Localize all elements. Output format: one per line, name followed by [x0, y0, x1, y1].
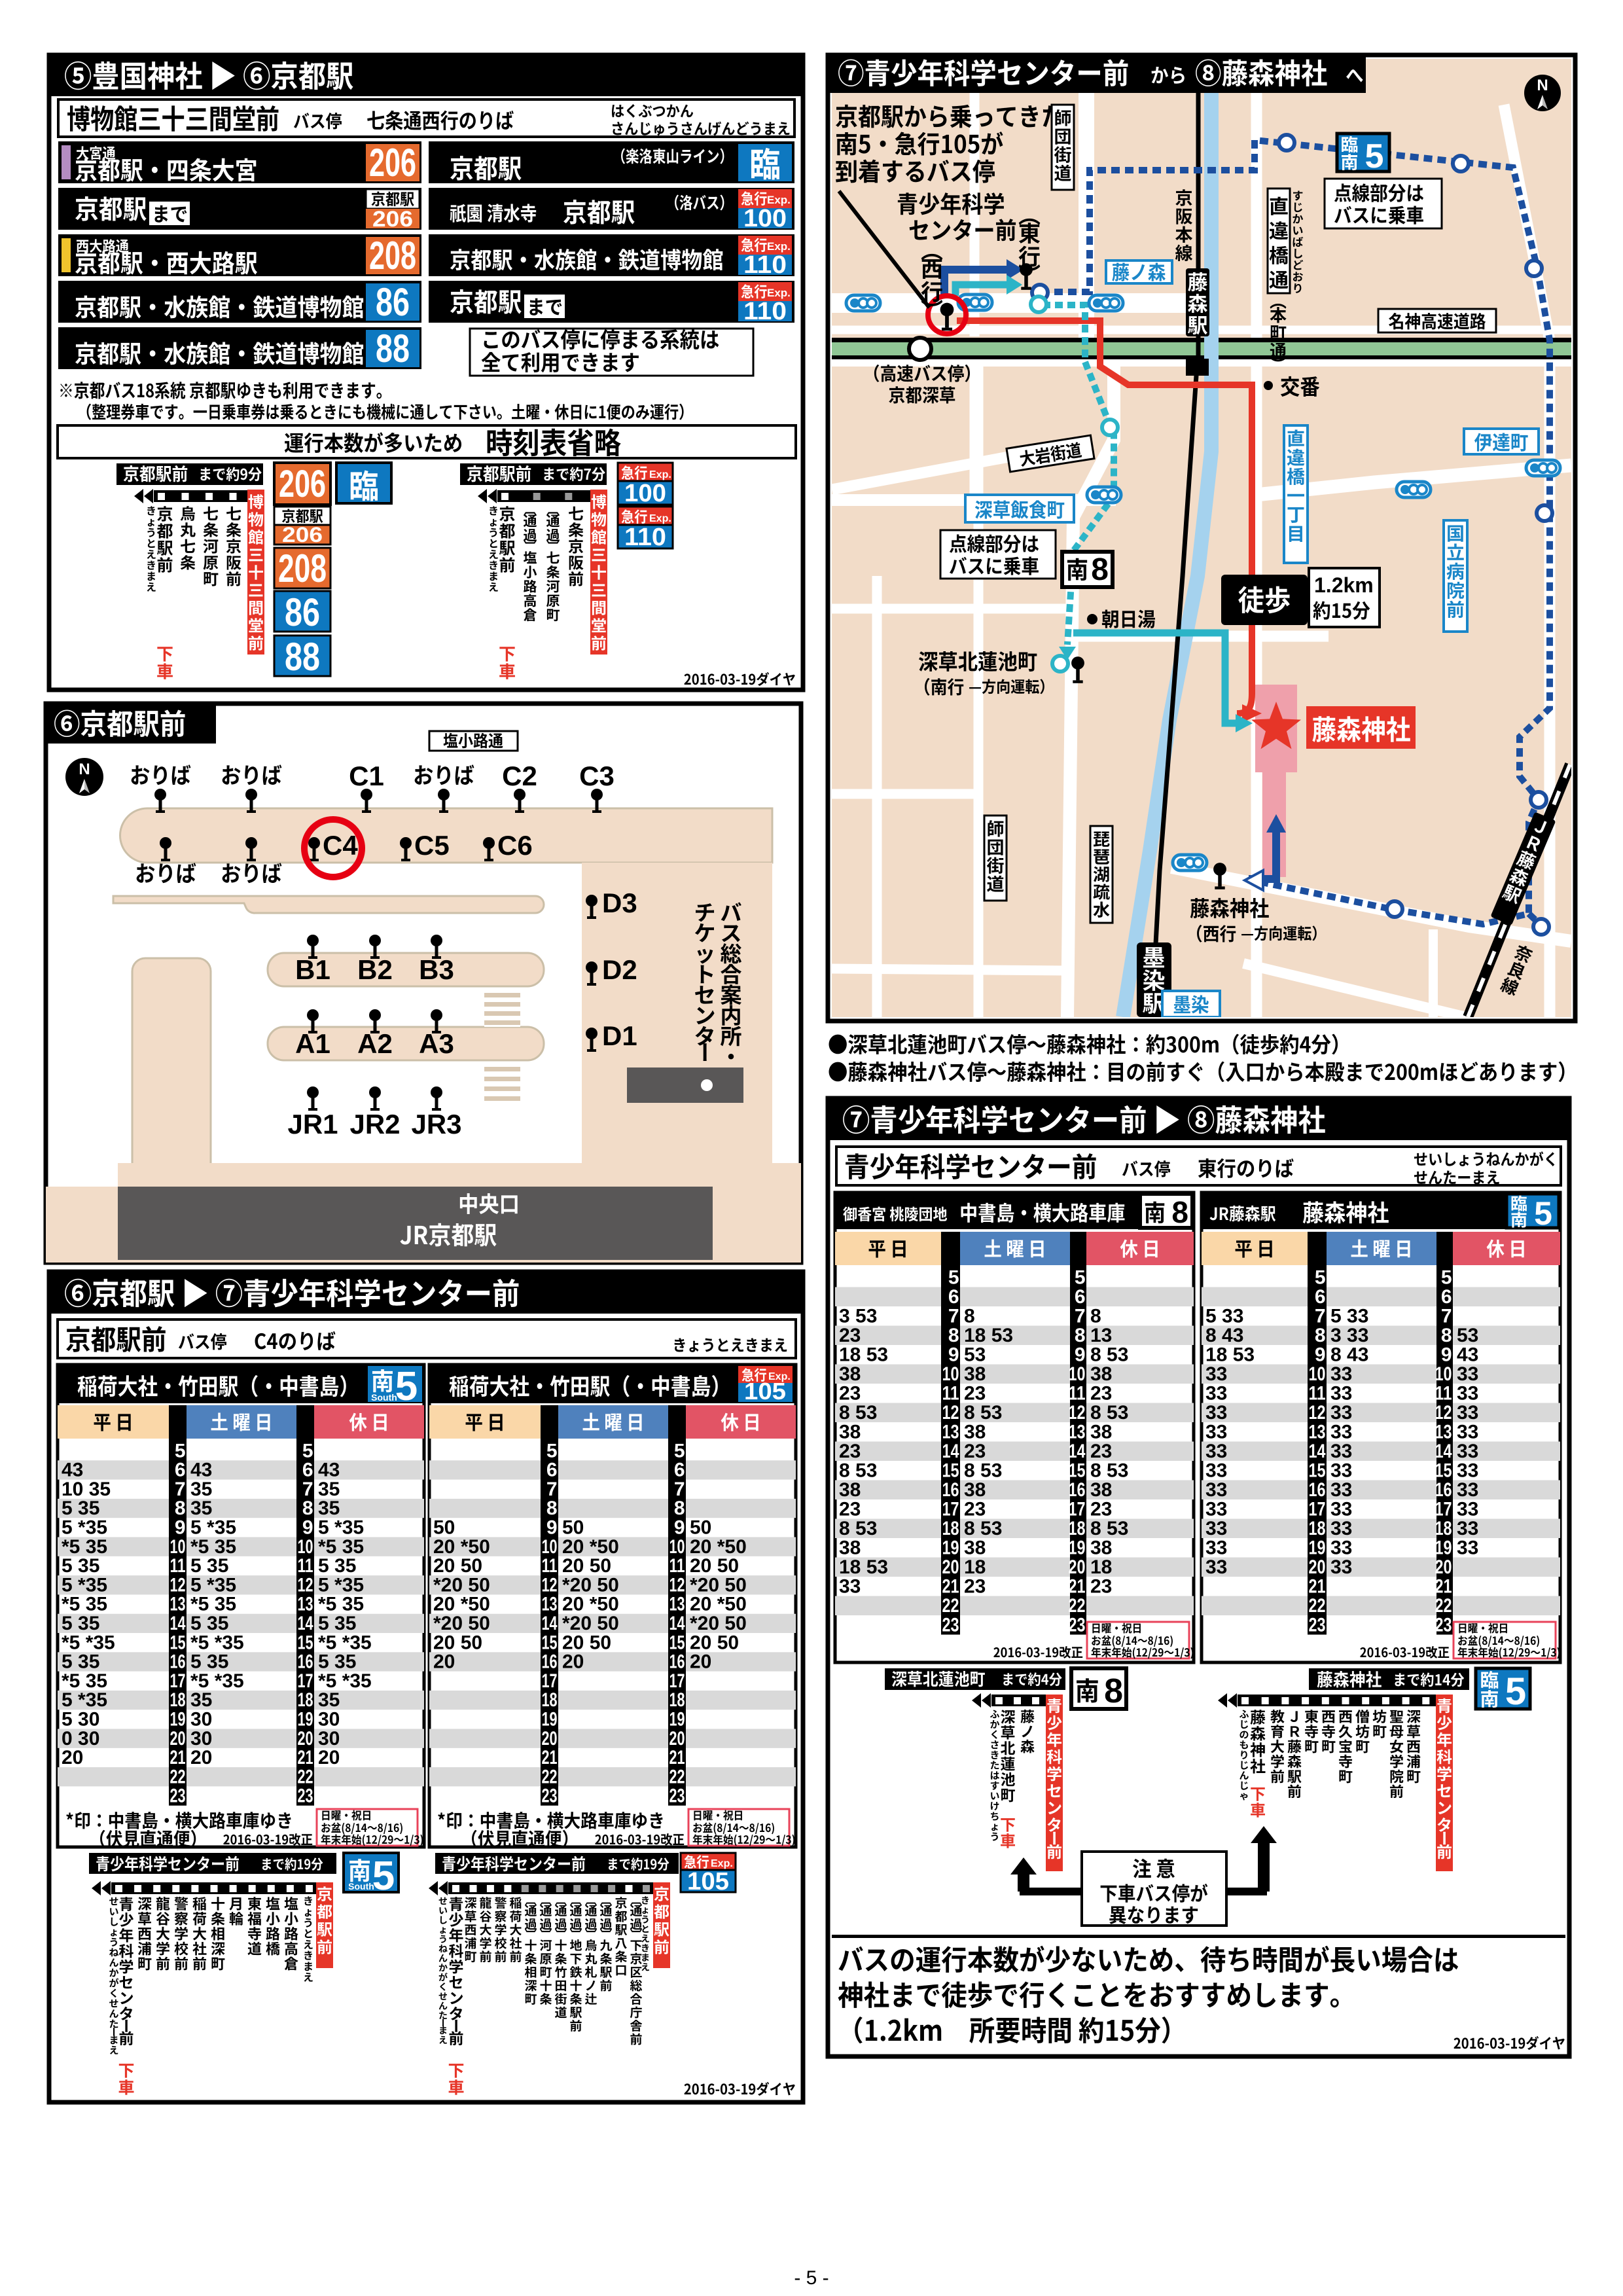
svg-text:206: 206	[369, 141, 416, 185]
svg-text:21: 21	[669, 1747, 685, 1768]
svg-text:JR3: JR3	[411, 1109, 461, 1139]
svg-text:33: 33	[1205, 1363, 1227, 1385]
svg-text:5 35: 5 35	[62, 1613, 99, 1634]
svg-text:18: 18	[1090, 1556, 1112, 1578]
svg-text:33: 33	[1457, 1518, 1478, 1539]
svg-text:35: 35	[318, 1689, 340, 1711]
svg-text:38: 38	[1090, 1479, 1112, 1501]
svg-text:10: 10	[298, 1536, 313, 1558]
svg-text:1.2km: 1.2km	[1314, 573, 1374, 597]
svg-text:8: 8	[964, 1306, 975, 1327]
svg-text:12: 12	[170, 1574, 186, 1596]
svg-text:11: 11	[298, 1555, 313, 1577]
svg-text:11: 11	[1309, 1383, 1326, 1405]
svg-text:33: 33	[1330, 1460, 1352, 1482]
svg-text:15: 15	[1069, 1460, 1086, 1482]
svg-text:43: 43	[1457, 1344, 1478, 1366]
svg-text:43: 43	[318, 1460, 340, 1481]
svg-text:100: 100	[624, 480, 666, 507]
svg-text:12: 12	[669, 1574, 685, 1596]
svg-text:12: 12	[1309, 1402, 1326, 1424]
svg-text:21: 21	[1069, 1576, 1086, 1598]
svg-text:10: 10	[170, 1536, 186, 1558]
svg-text:6: 6	[1441, 1286, 1452, 1308]
svg-text:7: 7	[546, 1479, 558, 1500]
svg-text:23: 23	[839, 1383, 861, 1405]
svg-text:23: 23	[964, 1441, 986, 1462]
svg-text:8: 8	[546, 1498, 558, 1519]
svg-text:11: 11	[669, 1555, 685, 1577]
svg-text:16: 16	[542, 1651, 558, 1673]
svg-text:22: 22	[298, 1766, 313, 1787]
svg-text:20 *50: 20 *50	[433, 1594, 490, 1615]
svg-text:C1: C1	[349, 761, 384, 791]
svg-text:33: 33	[1330, 1441, 1352, 1462]
svg-text:5 35: 5 35	[62, 1651, 99, 1673]
svg-text:N: N	[1537, 77, 1548, 94]
svg-text:15: 15	[669, 1632, 685, 1653]
svg-text:18: 18	[542, 1689, 558, 1711]
svg-text:30: 30	[318, 1709, 340, 1731]
svg-text:20: 20	[190, 1747, 212, 1768]
svg-text:14: 14	[669, 1613, 685, 1634]
svg-text:33: 33	[839, 1576, 861, 1598]
svg-text:South: South	[371, 1392, 397, 1403]
svg-text:20 50: 20 50	[562, 1632, 611, 1653]
svg-text:*5 *35: *5 *35	[190, 1670, 244, 1692]
svg-text:18 53: 18 53	[1205, 1344, 1255, 1366]
svg-text:23: 23	[542, 1785, 558, 1807]
svg-text:22: 22	[1435, 1595, 1452, 1617]
svg-text:23: 23	[964, 1576, 986, 1598]
svg-text:206: 206	[282, 523, 323, 547]
svg-text:20 50: 20 50	[562, 1555, 611, 1577]
svg-text:5 35: 5 35	[318, 1555, 356, 1577]
svg-text:33: 33	[1330, 1499, 1352, 1520]
svg-text:9: 9	[1315, 1344, 1326, 1366]
svg-text:16: 16	[942, 1479, 959, 1501]
svg-text:5 *35: 5 *35	[62, 1689, 107, 1711]
svg-text:33: 33	[1205, 1537, 1227, 1559]
svg-text:22: 22	[1069, 1595, 1086, 1617]
svg-text:*5 35: *5 35	[190, 1536, 236, 1558]
svg-text:33: 33	[1205, 1402, 1227, 1424]
svg-text:6: 6	[674, 1460, 685, 1481]
svg-text:23: 23	[839, 1441, 861, 1462]
svg-text:10 35: 10 35	[62, 1479, 111, 1500]
svg-text:7: 7	[948, 1306, 959, 1327]
svg-text:21: 21	[942, 1576, 959, 1598]
svg-text:20: 20	[170, 1728, 186, 1749]
svg-text:9: 9	[674, 1517, 685, 1539]
svg-text:6: 6	[1075, 1286, 1086, 1308]
svg-text:19: 19	[1309, 1537, 1326, 1559]
svg-text:9: 9	[302, 1517, 313, 1539]
svg-text:33: 33	[1457, 1479, 1478, 1501]
svg-text:5: 5	[546, 1440, 558, 1462]
svg-text:11: 11	[1435, 1383, 1452, 1405]
svg-text:*20 50: *20 50	[690, 1613, 747, 1634]
svg-text:35: 35	[318, 1498, 340, 1519]
svg-text:8: 8	[674, 1498, 685, 1519]
svg-text:21: 21	[1309, 1576, 1326, 1598]
svg-text:38: 38	[1090, 1422, 1112, 1443]
svg-text:23: 23	[1090, 1499, 1112, 1520]
svg-text:5 30: 5 30	[62, 1709, 99, 1731]
svg-text:53: 53	[1457, 1325, 1478, 1346]
svg-text:*5 35: *5 35	[190, 1594, 236, 1615]
svg-text:13: 13	[1069, 1422, 1086, 1443]
svg-text:6: 6	[948, 1286, 959, 1308]
svg-text:12: 12	[542, 1574, 558, 1596]
svg-text:5 35: 5 35	[190, 1613, 228, 1634]
svg-text:33: 33	[1330, 1479, 1352, 1501]
svg-text:20: 20	[1069, 1556, 1086, 1578]
svg-text:8: 8	[1441, 1325, 1452, 1346]
svg-text:5 *35: 5 *35	[190, 1517, 236, 1539]
svg-text:0 30: 0 30	[62, 1728, 99, 1749]
svg-text:30: 30	[190, 1709, 212, 1731]
svg-text:18: 18	[298, 1689, 313, 1711]
svg-text:38: 38	[839, 1363, 861, 1385]
svg-text:16: 16	[298, 1651, 313, 1673]
svg-text:5 35: 5 35	[62, 1498, 99, 1519]
svg-text:35: 35	[190, 1479, 212, 1500]
svg-text:D3: D3	[602, 888, 637, 918]
svg-text:5: 5	[1315, 1267, 1326, 1289]
svg-text:33: 33	[1205, 1422, 1227, 1443]
svg-text:22: 22	[170, 1766, 186, 1787]
svg-text:21: 21	[298, 1747, 313, 1768]
svg-text:C5: C5	[414, 830, 450, 861]
svg-text:8: 8	[1315, 1325, 1326, 1346]
svg-text:South: South	[348, 1881, 374, 1892]
svg-text:16: 16	[170, 1651, 186, 1673]
svg-text:9: 9	[1441, 1344, 1452, 1366]
svg-text:JR2: JR2	[349, 1109, 400, 1139]
svg-text:23: 23	[298, 1785, 313, 1807]
svg-text:10: 10	[542, 1536, 558, 1558]
svg-text:33: 33	[1330, 1363, 1352, 1385]
svg-text:9: 9	[546, 1517, 558, 1539]
svg-text:19: 19	[542, 1709, 558, 1731]
svg-text:8: 8	[302, 1498, 313, 1519]
svg-text:23: 23	[1435, 1615, 1452, 1636]
svg-text:33: 33	[1330, 1556, 1352, 1578]
svg-text:Exp.: Exp.	[649, 469, 671, 480]
svg-text:D1: D1	[602, 1020, 637, 1051]
svg-text:5 *35: 5 *35	[318, 1517, 364, 1539]
svg-text:38: 38	[964, 1422, 986, 1443]
svg-text:20: 20	[1309, 1556, 1326, 1578]
svg-text:208: 208	[278, 547, 327, 590]
svg-text:10: 10	[942, 1363, 959, 1385]
svg-text:33: 33	[1457, 1383, 1478, 1405]
svg-text:35: 35	[190, 1689, 212, 1711]
svg-text:10: 10	[1435, 1363, 1452, 1385]
svg-text:23: 23	[1309, 1615, 1326, 1636]
svg-text:50: 50	[562, 1517, 584, 1539]
svg-text:33: 33	[1205, 1499, 1227, 1520]
svg-text:8 53: 8 53	[839, 1518, 877, 1539]
svg-text:17: 17	[170, 1670, 186, 1692]
svg-text:*20 50: *20 50	[433, 1613, 490, 1634]
svg-text:13: 13	[170, 1594, 186, 1615]
svg-text:14: 14	[170, 1613, 186, 1634]
svg-text:43: 43	[190, 1460, 212, 1481]
svg-text:33: 33	[1457, 1402, 1478, 1424]
svg-text:18: 18	[1435, 1518, 1452, 1539]
svg-text:5 35: 5 35	[318, 1651, 356, 1673]
svg-text:14: 14	[298, 1613, 313, 1634]
svg-text:5: 5	[372, 1854, 395, 1899]
svg-text:20: 20	[1435, 1556, 1452, 1578]
svg-text:13: 13	[1090, 1325, 1112, 1346]
svg-text:33: 33	[1205, 1383, 1227, 1405]
svg-text:23: 23	[964, 1499, 986, 1520]
svg-text:18 53: 18 53	[964, 1325, 1013, 1346]
svg-text:10: 10	[1069, 1363, 1086, 1385]
svg-text:5 35: 5 35	[190, 1651, 228, 1673]
svg-text:7: 7	[302, 1479, 313, 1500]
svg-text:38: 38	[839, 1422, 861, 1443]
svg-text:8 53: 8 53	[964, 1402, 1002, 1424]
svg-text:20: 20	[669, 1728, 685, 1749]
svg-text:D2: D2	[602, 954, 637, 985]
svg-text:86: 86	[376, 280, 410, 324]
svg-text:14: 14	[942, 1441, 959, 1462]
svg-text:5: 5	[1505, 1670, 1526, 1713]
svg-text:B1: B1	[295, 954, 330, 985]
svg-text:*5 35: *5 35	[318, 1536, 364, 1558]
svg-text:10: 10	[1309, 1363, 1326, 1385]
svg-text:14: 14	[1435, 1441, 1452, 1462]
svg-text:5 35: 5 35	[62, 1555, 99, 1577]
svg-text:18: 18	[942, 1518, 959, 1539]
svg-text:3 33: 3 33	[1330, 1325, 1368, 1346]
svg-text:22: 22	[542, 1766, 558, 1787]
svg-text:7: 7	[1315, 1306, 1326, 1327]
svg-text:33: 33	[1457, 1499, 1478, 1520]
svg-text:20: 20	[433, 1651, 455, 1673]
svg-text:33: 33	[1330, 1518, 1352, 1539]
svg-text:5: 5	[1075, 1267, 1086, 1289]
svg-text:23: 23	[839, 1499, 861, 1520]
svg-text:15: 15	[1435, 1460, 1452, 1482]
svg-text:C3: C3	[579, 761, 615, 791]
svg-text:35: 35	[190, 1498, 212, 1519]
svg-text:6: 6	[175, 1460, 186, 1481]
svg-text:*20 50: *20 50	[562, 1574, 619, 1596]
svg-text:Exp.: Exp.	[649, 513, 671, 524]
svg-text:*5 *35: *5 *35	[62, 1632, 115, 1653]
svg-text:23: 23	[1090, 1383, 1112, 1405]
svg-text:8 53: 8 53	[1090, 1518, 1128, 1539]
svg-text:C4: C4	[323, 830, 358, 861]
svg-text:110: 110	[743, 251, 787, 279]
svg-text:*20 50: *20 50	[690, 1574, 747, 1596]
svg-text:8 53: 8 53	[964, 1460, 1002, 1482]
svg-text:17: 17	[298, 1670, 313, 1692]
svg-text:20: 20	[298, 1728, 313, 1749]
svg-text:15: 15	[170, 1632, 186, 1653]
svg-text:8: 8	[1171, 1195, 1188, 1229]
svg-text:12: 12	[942, 1402, 959, 1424]
svg-text:JR1: JR1	[287, 1109, 338, 1139]
svg-text:5 *35: 5 *35	[62, 1574, 107, 1596]
svg-text:5: 5	[395, 1364, 418, 1409]
svg-text:33: 33	[1205, 1556, 1227, 1578]
svg-text:12: 12	[1435, 1402, 1452, 1424]
svg-text:13: 13	[1309, 1422, 1326, 1443]
svg-text:105: 105	[744, 1378, 786, 1405]
svg-text:*20 50: *20 50	[562, 1613, 619, 1634]
svg-text:8 53: 8 53	[1090, 1460, 1128, 1482]
svg-text:38: 38	[839, 1537, 861, 1559]
svg-text:14: 14	[1069, 1441, 1086, 1462]
svg-text:33: 33	[1330, 1537, 1352, 1559]
svg-text:5 33: 5 33	[1205, 1306, 1243, 1327]
svg-text:20 *50: 20 *50	[433, 1536, 490, 1558]
svg-text:8 53: 8 53	[1090, 1344, 1128, 1366]
svg-text:86: 86	[285, 590, 320, 634]
svg-text:20 50: 20 50	[690, 1632, 739, 1653]
svg-text:33: 33	[1457, 1441, 1478, 1462]
svg-text:13: 13	[942, 1422, 959, 1443]
svg-text:15: 15	[298, 1632, 313, 1653]
svg-text:208: 208	[369, 234, 416, 278]
svg-text:10: 10	[669, 1536, 685, 1558]
svg-text:33: 33	[1205, 1441, 1227, 1462]
svg-text:7: 7	[674, 1479, 685, 1500]
svg-text:19: 19	[669, 1709, 685, 1731]
svg-text:110: 110	[743, 298, 787, 325]
svg-text:18: 18	[170, 1689, 186, 1711]
svg-text:13: 13	[298, 1594, 313, 1615]
svg-text:17: 17	[542, 1670, 558, 1692]
svg-text:17: 17	[942, 1499, 959, 1520]
svg-text:33: 33	[1457, 1460, 1478, 1482]
svg-text:8: 8	[1091, 552, 1109, 587]
svg-text:16: 16	[1435, 1479, 1452, 1501]
svg-text:18 53: 18 53	[839, 1344, 888, 1366]
svg-text:6: 6	[1315, 1286, 1326, 1308]
svg-text:5 *35: 5 *35	[62, 1517, 107, 1539]
svg-text:7: 7	[175, 1479, 186, 1500]
svg-text:11: 11	[942, 1383, 959, 1405]
svg-text:15: 15	[942, 1460, 959, 1482]
svg-text:5: 5	[302, 1440, 313, 1462]
svg-text:16: 16	[669, 1651, 685, 1673]
svg-text:5 35: 5 35	[190, 1555, 228, 1577]
svg-text:13: 13	[1435, 1422, 1452, 1443]
svg-text:22: 22	[669, 1766, 685, 1787]
svg-text:8: 8	[1075, 1325, 1086, 1346]
svg-text:20: 20	[942, 1556, 959, 1578]
svg-text:*5 *35: *5 *35	[190, 1632, 244, 1653]
svg-text:11: 11	[542, 1555, 558, 1577]
svg-text:22: 22	[942, 1595, 959, 1617]
svg-text:8 53: 8 53	[839, 1460, 877, 1482]
svg-text:19: 19	[298, 1709, 313, 1731]
svg-text:23: 23	[170, 1785, 186, 1807]
svg-text:5 *35: 5 *35	[318, 1574, 364, 1596]
svg-text:8 53: 8 53	[964, 1518, 1002, 1539]
svg-text:*5 35: *5 35	[318, 1594, 364, 1615]
svg-text:11: 11	[170, 1555, 186, 1577]
svg-text:206: 206	[372, 207, 413, 232]
svg-text:22: 22	[1309, 1595, 1326, 1617]
svg-text:23: 23	[1090, 1441, 1112, 1462]
svg-text:23: 23	[839, 1325, 861, 1346]
svg-text:20 *50: 20 *50	[690, 1594, 747, 1615]
svg-text:30: 30	[190, 1728, 212, 1749]
svg-text:20 50: 20 50	[433, 1632, 482, 1653]
svg-text:8: 8	[175, 1498, 186, 1519]
svg-text:33: 33	[1330, 1422, 1352, 1443]
svg-text:20: 20	[62, 1747, 83, 1768]
svg-text:14: 14	[542, 1613, 558, 1634]
svg-text:8 53: 8 53	[1090, 1402, 1128, 1424]
svg-text:33: 33	[1330, 1402, 1352, 1424]
svg-text:9: 9	[1075, 1344, 1086, 1366]
svg-text:23: 23	[942, 1615, 959, 1636]
svg-text:20 50: 20 50	[433, 1555, 482, 1577]
svg-text:B2: B2	[357, 954, 393, 985]
svg-text:12: 12	[1069, 1402, 1086, 1424]
svg-text:33: 33	[1330, 1383, 1352, 1405]
svg-text:5: 5	[1441, 1267, 1452, 1289]
svg-text:13: 13	[669, 1594, 685, 1615]
svg-text:100: 100	[743, 205, 787, 232]
svg-text:6: 6	[546, 1460, 558, 1481]
svg-text:20 50: 20 50	[690, 1555, 739, 1577]
svg-text:18: 18	[1069, 1518, 1086, 1539]
svg-text:5: 5	[1365, 137, 1384, 175]
svg-text:17: 17	[1435, 1499, 1452, 1520]
svg-text:21: 21	[542, 1747, 558, 1768]
svg-text:38: 38	[964, 1537, 986, 1559]
svg-text:16: 16	[1069, 1479, 1086, 1501]
svg-text:8: 8	[948, 1325, 959, 1346]
svg-text:17: 17	[1309, 1499, 1326, 1520]
svg-text:9: 9	[175, 1517, 186, 1539]
svg-text:12: 12	[298, 1574, 313, 1596]
svg-text:18: 18	[669, 1689, 685, 1711]
svg-text:- 5 -: - 5 -	[794, 2267, 829, 2289]
svg-text:8: 8	[1104, 1672, 1123, 1710]
svg-text:19: 19	[1069, 1537, 1086, 1559]
svg-text:38: 38	[1090, 1537, 1112, 1559]
svg-text:18: 18	[1309, 1518, 1326, 1539]
svg-text:20 *50: 20 *50	[562, 1594, 619, 1615]
svg-text:17: 17	[669, 1670, 685, 1692]
svg-text:A3: A3	[419, 1028, 454, 1059]
svg-text:35: 35	[318, 1479, 340, 1500]
svg-text:5: 5	[948, 1267, 959, 1289]
svg-text:5: 5	[175, 1440, 186, 1462]
svg-text:38: 38	[964, 1479, 986, 1501]
svg-text:19: 19	[170, 1709, 186, 1731]
svg-text:8: 8	[1090, 1306, 1101, 1327]
svg-text:23: 23	[669, 1785, 685, 1807]
svg-text:18 53: 18 53	[839, 1556, 888, 1578]
svg-text:*5 35: *5 35	[62, 1536, 107, 1558]
svg-text:16: 16	[1309, 1479, 1326, 1501]
svg-text:3 53: 3 53	[839, 1306, 877, 1327]
svg-text:*5 35: *5 35	[62, 1670, 107, 1692]
svg-text:8 53: 8 53	[839, 1402, 877, 1424]
